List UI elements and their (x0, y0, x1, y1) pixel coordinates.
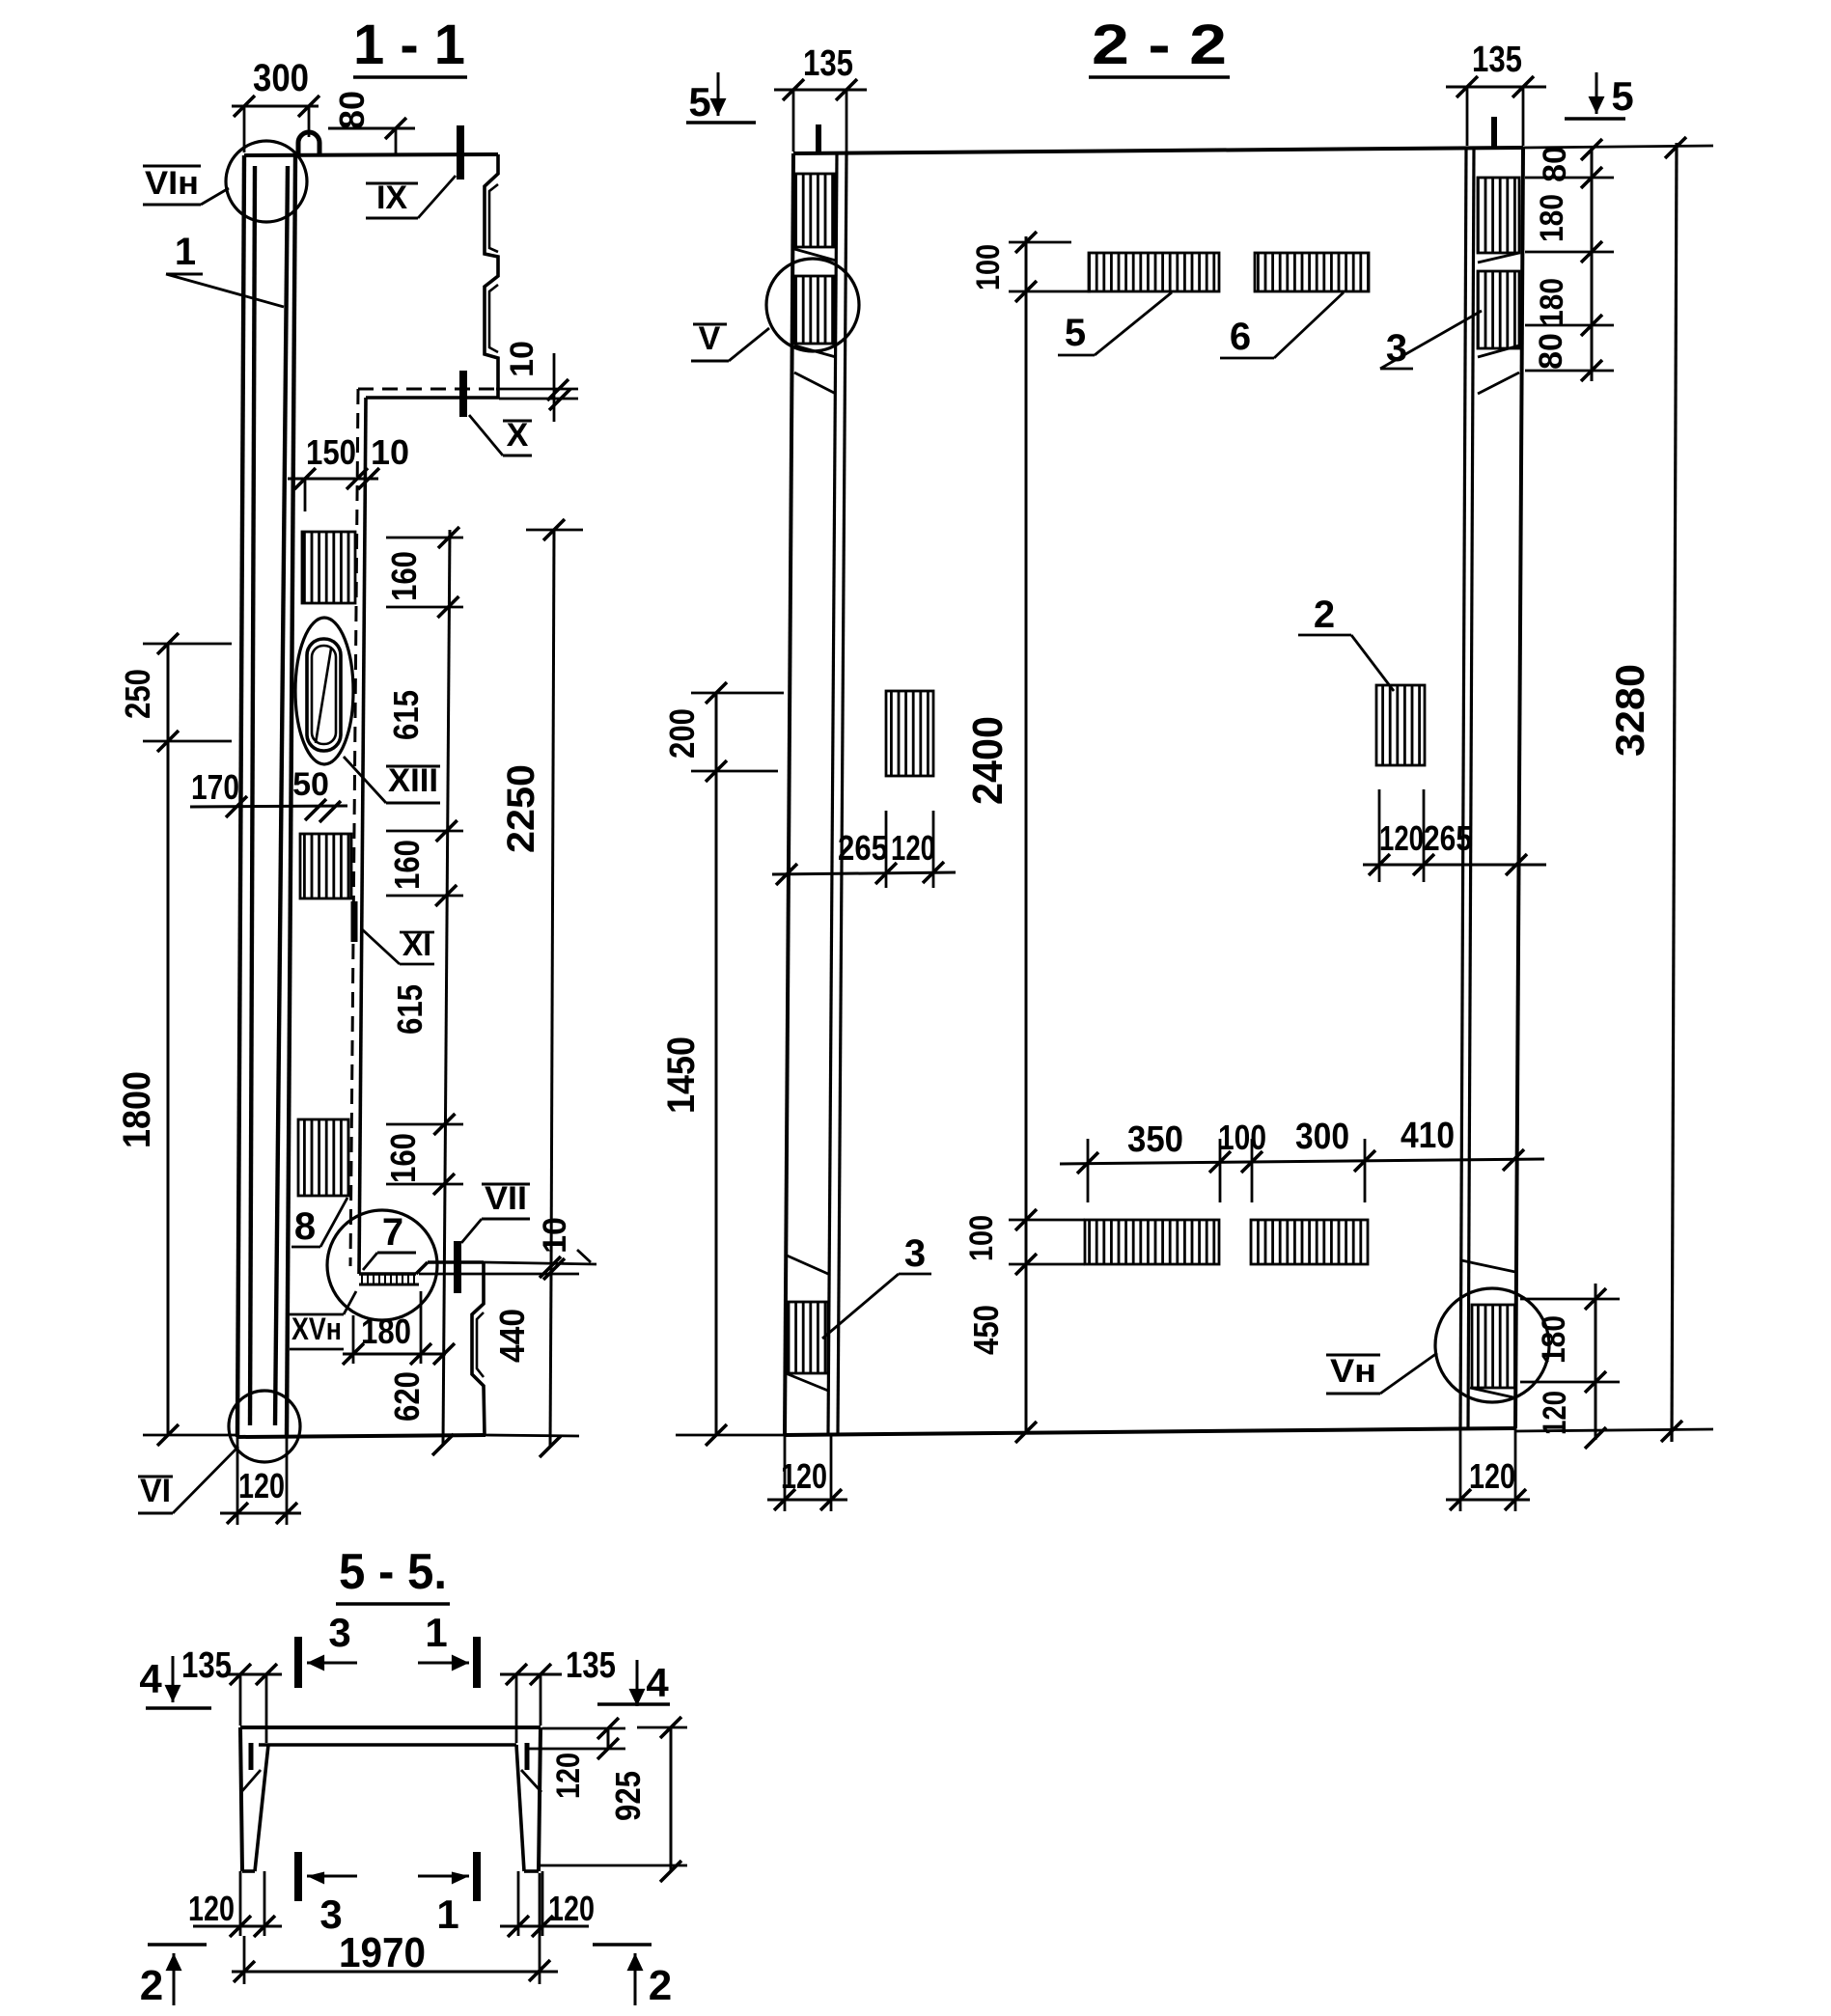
svg-text:10: 10 (537, 1217, 573, 1254)
svg-text:300: 300 (1295, 1117, 1349, 1157)
svg-text:120: 120 (781, 1456, 827, 1496)
svg-text:120: 120 (548, 1889, 595, 1928)
svg-text:120: 120 (1537, 1391, 1573, 1435)
svg-text:4: 4 (646, 1660, 669, 1705)
svg-text:5: 5 (1611, 73, 1633, 119)
svg-text:2: 2 (649, 1962, 672, 2009)
svg-text:410: 410 (1401, 1116, 1455, 1156)
svg-text:615: 615 (390, 984, 430, 1035)
svg-text:180: 180 (361, 1312, 411, 1351)
svg-text:VII: VII (485, 1180, 527, 1217)
svg-text:5: 5 (1065, 312, 1086, 354)
svg-text:3: 3 (328, 1610, 350, 1655)
svg-text:80: 80 (1533, 333, 1569, 370)
svg-text:450: 450 (966, 1305, 1006, 1355)
svg-text:VI: VI (140, 1473, 171, 1509)
svg-text:VIн: VIн (145, 165, 199, 202)
svg-text:265: 265 (1424, 818, 1472, 858)
svg-text:2250: 2250 (500, 764, 542, 853)
svg-text:Vн: Vн (1330, 1353, 1376, 1390)
svg-text:4: 4 (139, 1656, 162, 1701)
svg-text:440: 440 (492, 1309, 532, 1363)
svg-text:3: 3 (904, 1232, 926, 1275)
svg-text:XIII: XIII (388, 762, 438, 799)
svg-text:100: 100 (1218, 1118, 1266, 1157)
svg-text:120: 120 (1469, 1456, 1515, 1496)
svg-text:10: 10 (371, 432, 409, 472)
svg-text:170: 170 (191, 767, 239, 807)
svg-text:160: 160 (383, 1133, 423, 1183)
svg-text:620: 620 (387, 1371, 427, 1422)
svg-text:2: 2 (140, 1962, 163, 2009)
svg-text:180: 180 (1534, 194, 1570, 242)
svg-text:1: 1 (425, 1610, 447, 1655)
svg-text:120: 120 (1379, 818, 1424, 858)
svg-text:160: 160 (387, 840, 427, 890)
svg-text:250: 250 (118, 669, 157, 719)
svg-text:1: 1 (175, 231, 196, 273)
svg-text:1 - 1: 1 - 1 (353, 14, 465, 76)
svg-text:200: 200 (662, 708, 702, 759)
svg-text:2: 2 (1314, 594, 1335, 636)
svg-text:X: X (507, 417, 529, 454)
svg-text:135: 135 (803, 43, 853, 84)
svg-text:100: 100 (970, 244, 1007, 290)
svg-text:10: 10 (504, 341, 541, 377)
svg-text:V: V (699, 320, 721, 357)
svg-text:2 - 2: 2 - 2 (1092, 14, 1227, 76)
svg-text:120: 120 (891, 828, 935, 868)
svg-text:100: 100 (963, 1215, 1000, 1261)
svg-text:150: 150 (306, 432, 356, 472)
svg-text:1450: 1450 (660, 1036, 703, 1114)
svg-text:135: 135 (566, 1645, 616, 1686)
svg-text:1: 1 (436, 1892, 458, 1937)
svg-text:350: 350 (1127, 1119, 1183, 1160)
svg-text:5 - 5.: 5 - 5. (339, 1544, 447, 1600)
svg-text:1970: 1970 (339, 1929, 426, 1976)
svg-text:265: 265 (838, 828, 888, 868)
svg-text:2400: 2400 (964, 716, 1012, 805)
svg-text:5: 5 (688, 79, 710, 124)
svg-text:120: 120 (188, 1889, 235, 1928)
svg-text:180: 180 (1534, 278, 1570, 326)
svg-text:120: 120 (238, 1466, 285, 1505)
svg-text:80: 80 (332, 91, 372, 129)
svg-text:615: 615 (386, 690, 426, 740)
svg-text:135: 135 (181, 1645, 232, 1686)
svg-text:135: 135 (1472, 40, 1522, 80)
svg-text:IX: IX (376, 180, 407, 216)
svg-text:925: 925 (608, 1771, 648, 1821)
svg-text:50: 50 (292, 766, 329, 803)
svg-text:120: 120 (550, 1753, 587, 1799)
svg-text:6: 6 (1230, 316, 1251, 358)
svg-text:80: 80 (1537, 146, 1573, 182)
svg-text:XVн: XVн (291, 1312, 342, 1346)
svg-text:300: 300 (253, 57, 309, 99)
svg-text:160: 160 (384, 551, 424, 601)
svg-text:180: 180 (1536, 1315, 1572, 1364)
svg-text:7: 7 (382, 1211, 403, 1254)
svg-text:1800: 1800 (116, 1071, 158, 1148)
svg-text:8: 8 (294, 1205, 316, 1248)
svg-text:3280: 3280 (1607, 664, 1652, 757)
